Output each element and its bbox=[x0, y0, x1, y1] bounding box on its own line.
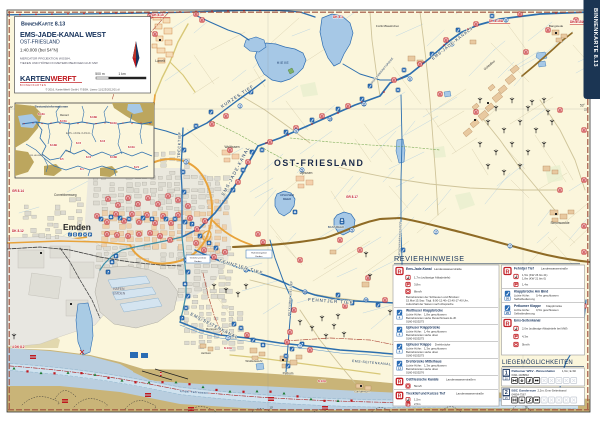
svg-text:2,5m: 2,5m bbox=[414, 402, 421, 406]
svg-text:0160-8155275: 0160-8155275 bbox=[406, 320, 424, 324]
svg-text:1: 1 bbox=[505, 371, 508, 377]
svg-text:Fehntjer Tief: Fehntjer Tief bbox=[514, 267, 535, 271]
svg-text:8.16B: 8.16B bbox=[90, 115, 97, 119]
svg-text:15': 15' bbox=[525, 406, 529, 410]
svg-text:11: 11 bbox=[362, 102, 366, 106]
svg-text:2: 2 bbox=[299, 344, 301, 348]
svg-text:2,0m (zulässige Abladetiefe be: 2,0m (zulässige Abladetiefe bei MW) bbox=[522, 327, 567, 331]
svg-text:2: 2 bbox=[505, 390, 508, 396]
svg-text:Landeswasserstraßen: Landeswasserstraßen bbox=[446, 378, 476, 382]
svg-text:5: 5 bbox=[351, 228, 353, 232]
svg-text:P: P bbox=[89, 233, 92, 237]
svg-text:TIEFEN UND HÖHEN IN METERN BEZ: TIEFEN UND HÖHEN IN METERN BEZOGEN AUF M… bbox=[20, 61, 98, 65]
svg-text:R: R bbox=[397, 269, 401, 275]
svg-text:10: 10 bbox=[328, 117, 332, 121]
svg-text:0,4m geschlossen: 0,4m geschlossen bbox=[536, 293, 559, 297]
svg-text:20: 20 bbox=[506, 311, 510, 315]
svg-text:Verkehrszentrale: Verkehrszentrale bbox=[190, 257, 207, 260]
svg-text:3,8m: 3,8m bbox=[414, 283, 421, 287]
svg-text:Bangstede: Bangstede bbox=[549, 24, 564, 28]
svg-text:DK 8.1: DK 8.1 bbox=[333, 15, 343, 19]
svg-text:8: 8 bbox=[505, 18, 507, 22]
svg-text:8.15A: 8.15A bbox=[60, 119, 67, 123]
svg-text:1 km: 1 km bbox=[118, 72, 126, 76]
svg-text:36: 36 bbox=[364, 298, 368, 302]
svg-text:8.15: 8.15 bbox=[76, 141, 82, 145]
svg-text:Larrelt: Larrelt bbox=[155, 59, 165, 63]
svg-text:Ostfriesische Kanäle: Ostfriesische Kanäle bbox=[406, 378, 439, 382]
svg-text:0160-8155275: 0160-8155275 bbox=[406, 354, 424, 358]
svg-text:Loga: Loga bbox=[66, 151, 72, 153]
svg-text:8.4: 8.4 bbox=[80, 167, 84, 171]
svg-text:36: 36 bbox=[303, 290, 307, 294]
svg-text:R: R bbox=[505, 269, 509, 275]
svg-text:GR 8.14: GR 8.14 bbox=[12, 189, 24, 193]
svg-text:BINNENKARTE 8.13: BINNENKARTE 8.13 bbox=[592, 8, 598, 67]
svg-text:Wolthusen: Wolthusen bbox=[224, 145, 239, 149]
svg-text:3: 3 bbox=[185, 160, 187, 164]
svg-text:2: 2 bbox=[509, 244, 511, 248]
svg-text:4,3m: 4,3m bbox=[522, 335, 529, 339]
svg-text:GR 8.17: GR 8.17 bbox=[346, 195, 358, 199]
svg-text:6: 6 bbox=[409, 77, 411, 81]
svg-text:WILHELMINE: WILHELMINE bbox=[30, 155, 44, 157]
svg-text:0,5m geschlossen: 0,5m geschlossen bbox=[536, 308, 559, 312]
svg-text:Simonswolde: Simonswolde bbox=[551, 221, 570, 225]
svg-text:8.10A: 8.10A bbox=[110, 121, 117, 125]
svg-text:BANSMEER: BANSMEER bbox=[328, 225, 344, 229]
svg-text:R: R bbox=[398, 394, 402, 400]
svg-text:8.16: 8.16 bbox=[100, 139, 106, 143]
svg-text:5km/h: 5km/h bbox=[414, 384, 422, 388]
svg-text:Landeswasserstraße: Landeswasserstraße bbox=[434, 267, 462, 271]
svg-text:8.21: 8.21 bbox=[134, 165, 140, 169]
svg-text:Landeswasserstraße: Landeswasserstraße bbox=[541, 267, 568, 271]
svg-text:20: 20 bbox=[506, 297, 510, 301]
svg-text:0491-1328842: 0491-1328842 bbox=[512, 373, 530, 377]
svg-text:Aufenthalt der Saison nach Abs: Aufenthalt der Saison nach Absprache bbox=[406, 302, 454, 306]
svg-text:B I N N E N K A R T E N: B I N N E N K A R T E N bbox=[20, 84, 46, 87]
svg-text:© 2016, KartenWerft GmbH, © BS: © 2016, KartenWerft GmbH, © BSH, Lizenz … bbox=[45, 88, 119, 92]
svg-text:EMS-JADE-KANAL: EMS-JADE-KANAL bbox=[66, 132, 91, 135]
svg-text:Emden: Emden bbox=[195, 261, 203, 263]
svg-text:DK 8.15: DK 8.15 bbox=[152, 13, 164, 17]
svg-text:1,8m (KW 21 bis 0): 1,8m (KW 21 bis 0) bbox=[522, 277, 546, 281]
svg-text:2: 2 bbox=[227, 336, 229, 340]
svg-text:Marcard: Marcard bbox=[60, 114, 69, 117]
svg-text:HIEVE: HIEVE bbox=[277, 61, 290, 65]
svg-text:OST-FRIESLAND: OST-FRIESLAND bbox=[274, 158, 364, 168]
svg-text:LIEGEMÖGLICHKEITEN: LIEGEMÖGLICHKEITEN bbox=[502, 359, 573, 366]
svg-text:22': 22' bbox=[10, 105, 14, 109]
svg-text:12: 12 bbox=[398, 366, 402, 370]
svg-text:2,2m; Ems-Seitenkanal: 2,2m; Ems-Seitenkanal bbox=[537, 389, 566, 393]
svg-text:8.16A: 8.16A bbox=[38, 112, 45, 116]
svg-text:1,6m; E-SK: 1,6m; E-SK bbox=[562, 369, 576, 373]
svg-text:Forlitz-Blaukirchen: Forlitz-Blaukirchen bbox=[376, 24, 400, 28]
svg-text:OST-FRIESLAND: OST-FRIESLAND bbox=[20, 40, 60, 46]
svg-text:Widdelswehr: Widdelswehr bbox=[245, 359, 262, 363]
svg-text:BSC Gandersum: BSC Gandersum bbox=[512, 389, 537, 393]
svg-text:R: R bbox=[505, 321, 509, 327]
svg-text:KARTEN: KARTEN bbox=[20, 74, 50, 83]
svg-text:Emden: Emden bbox=[256, 256, 264, 258]
svg-text:P: P bbox=[115, 255, 118, 259]
svg-text:8.16B: 8.16B bbox=[110, 155, 117, 159]
svg-text:Landeswasserstraße: Landeswasserstraße bbox=[456, 392, 484, 396]
svg-text:1,5m: 1,5m bbox=[414, 398, 421, 402]
svg-text:MEER: MEER bbox=[283, 197, 291, 201]
svg-text:Ems-Seitenkanal: Ems-Seitenkanal bbox=[514, 319, 540, 323]
svg-text:8.5: 8.5 bbox=[60, 157, 64, 161]
svg-text:0160-8155275: 0160-8155275 bbox=[406, 337, 424, 341]
svg-text:Conrebbersweg: Conrebbersweg bbox=[54, 193, 77, 197]
svg-text:HAFEN: HAFEN bbox=[113, 287, 125, 291]
svg-text:1,7m (zulässige Abladetiefe): 1,7m (zulässige Abladetiefe) bbox=[414, 276, 450, 280]
svg-text:Petkumer WSV - Binnenhafen: Petkumer WSV - Binnenhafen bbox=[512, 369, 556, 373]
svg-text:EMS-JADE-KANAL WEST: EMS-JADE-KANAL WEST bbox=[20, 30, 106, 39]
svg-text:DK 8.12: DK 8.12 bbox=[12, 229, 24, 233]
svg-text:5km/h: 5km/h bbox=[522, 343, 530, 347]
svg-text:8.13A: 8.13A bbox=[318, 379, 327, 383]
svg-text:500 m: 500 m bbox=[95, 72, 105, 76]
svg-text:1:40.000 (bei 54°N): 1:40.000 (bei 54°N) bbox=[20, 48, 59, 53]
svg-text:Hafentörngebiet: Hafentörngebiet bbox=[251, 252, 267, 255]
svg-text:REVIERHINWEISE: REVIERHINWEISE bbox=[394, 254, 465, 263]
svg-text:8.13B: 8.13B bbox=[50, 143, 57, 147]
svg-text:Emden: Emden bbox=[63, 222, 91, 232]
svg-text:10': 10' bbox=[270, 406, 274, 410]
svg-text:Petkum: Petkum bbox=[283, 372, 294, 376]
svg-text:Selbstbedienung: Selbstbedienung bbox=[514, 297, 535, 301]
svg-text:9: 9 bbox=[295, 129, 297, 133]
svg-text:8km/h: 8km/h bbox=[414, 290, 422, 294]
svg-text:0160-8155276: 0160-8155276 bbox=[406, 371, 424, 375]
svg-text:Ems-Jade-Kanal: Ems-Jade-Kanal bbox=[406, 267, 432, 271]
svg-text:4 DK 8.2: 4 DK 8.2 bbox=[12, 345, 25, 349]
svg-text:8.10A: 8.10A bbox=[128, 145, 135, 149]
svg-text:EMDEN: EMDEN bbox=[113, 292, 126, 296]
svg-text:DK 8.15A: DK 8.15A bbox=[570, 20, 585, 24]
svg-text:MERCATOR PROJEKTION WGS84,: MERCATOR PROJEKTION WGS84, bbox=[20, 57, 71, 61]
svg-text:Trecktief und Kurzes Tief: Trecktief und Kurzes Tief bbox=[406, 392, 446, 396]
svg-text:DK 8.15A: DK 8.15A bbox=[489, 19, 504, 23]
svg-text:3: 3 bbox=[239, 104, 241, 108]
svg-text:Selbstbedienung: Selbstbedienung bbox=[514, 311, 535, 315]
svg-text:8.15: 8.15 bbox=[86, 155, 92, 159]
svg-text:2: 2 bbox=[435, 230, 437, 234]
svg-text:Gandersum: Gandersum bbox=[354, 390, 370, 394]
svg-text:R: R bbox=[398, 380, 402, 386]
svg-text:04954-7567: 04954-7567 bbox=[512, 392, 527, 396]
svg-text:8.13A: 8.13A bbox=[224, 346, 233, 350]
svg-text:1,4m: 1,4m bbox=[522, 283, 529, 287]
svg-text:Jarßum: Jarßum bbox=[201, 351, 212, 355]
svg-text:WERFT: WERFT bbox=[51, 74, 77, 83]
svg-text:Uphusen: Uphusen bbox=[300, 171, 313, 175]
svg-text:Borssum: Borssum bbox=[206, 327, 218, 331]
